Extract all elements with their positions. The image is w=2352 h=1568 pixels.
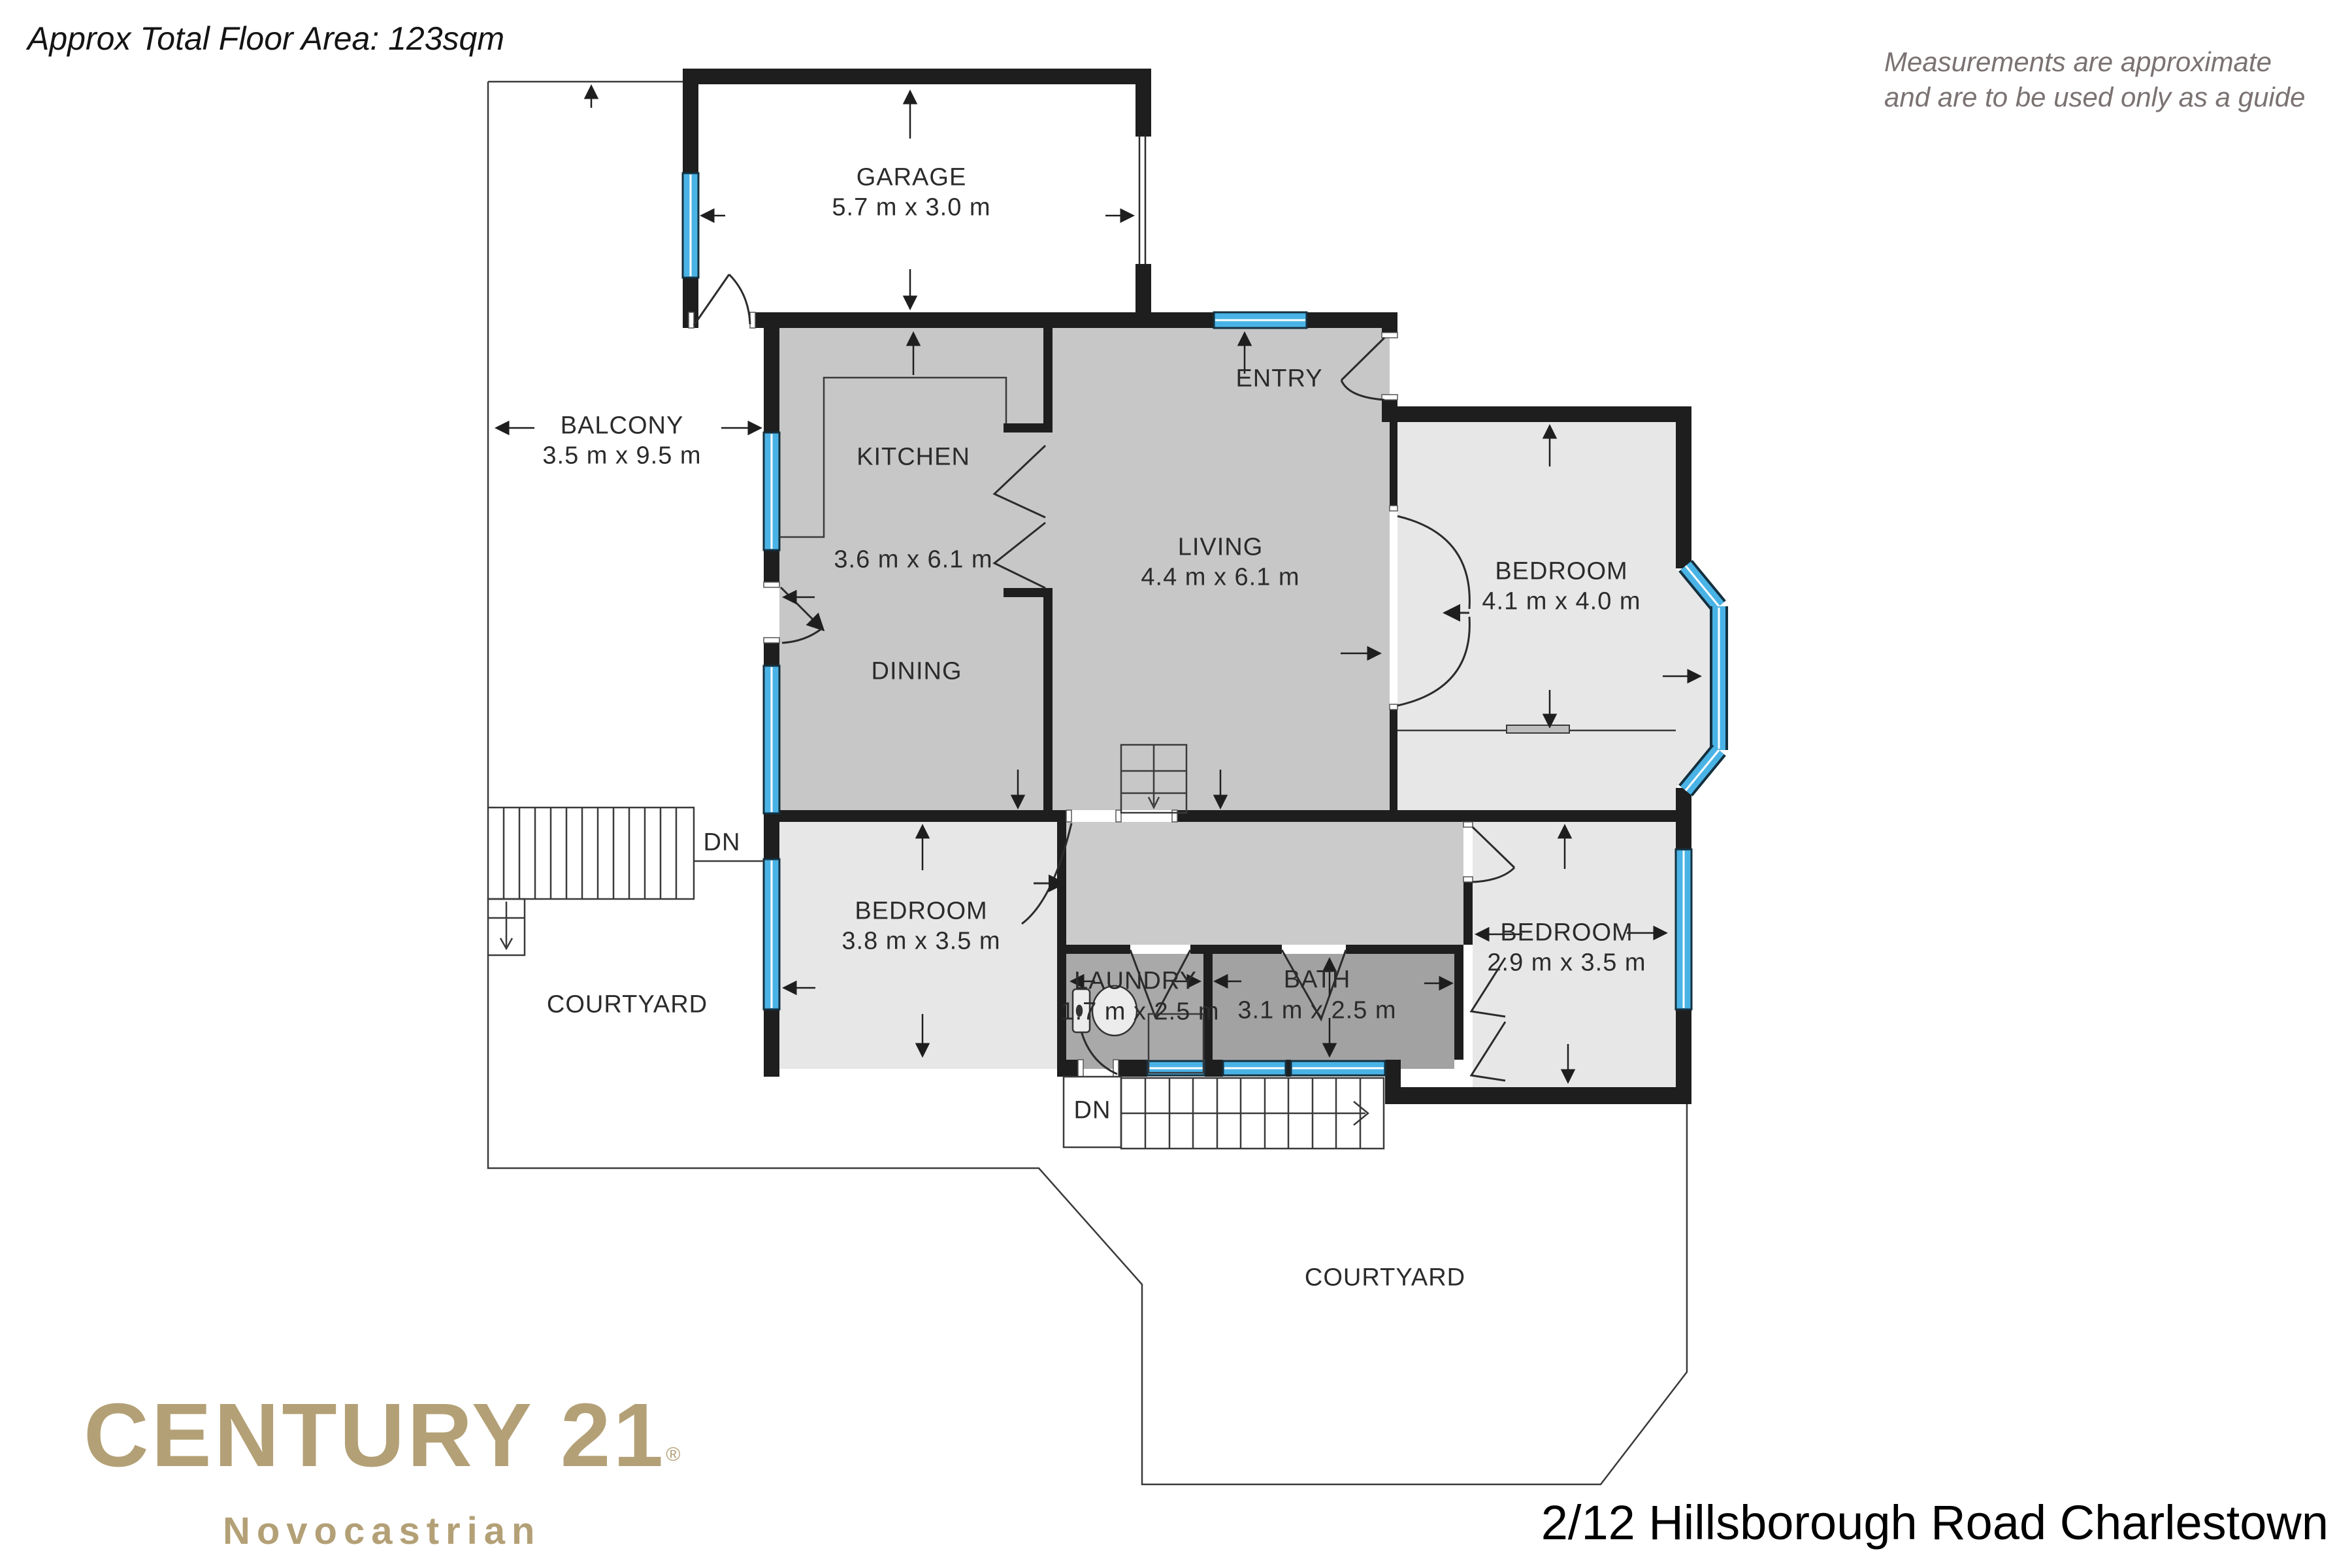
area-label-courtyard-bottom: COURTYARD [1305,1264,1465,1292]
room-label-living: LIVING [1178,534,1264,562]
garage-vehicle-door [1139,135,1145,264]
room-label-bedroom-top-right: BEDROOM [1495,558,1627,586]
room-dims-kitchen-dining: 3.6 m x 6.1 m [834,546,992,574]
floor-hallway [1066,822,1463,945]
brand-name: CENTURY 21® [84,1390,680,1500]
room-dims-balcony: 3.5 m x 9.5 m [542,442,701,470]
disclaimer-line-2: and are to be used only as a guide [1884,80,2305,115]
room-dims-bedroom-bottom-right: 2.9 m x 3.5 m [1487,949,1646,977]
stairs-label-dn-bottom: DN [1074,1097,1111,1125]
room-label-balcony: BALCONY [561,412,684,440]
stairs-label-dn-left: DN [704,829,741,857]
disclaimer-note: Measurements are approximate and are to … [1884,44,2305,115]
room-label-laundry: LAUNDRY [1074,968,1197,996]
room-label-garage: GARAGE [857,164,967,192]
page-title: Approx Total Floor Area: 123sqm [27,20,504,57]
room-label-entry: ENTRY [1235,365,1322,393]
garage-door-arc [694,274,750,325]
room-dims-living: 4.4 m x 6.1 m [1141,564,1299,592]
floor-plan-drawing [0,0,2352,1568]
room-dims-bath: 3.1 m x 2.5 m [1237,997,1396,1025]
disclaimer-line-1: Measurements are approximate [1884,44,2305,80]
office-name: Novocastrian [84,1509,680,1553]
room-label-dining: DINING [872,658,962,686]
room-dims-laundry: 1.7 m x 2.5 m [1060,998,1219,1026]
room-dims-garage: 5.7 m x 3.0 m [832,194,990,222]
stairs-courtyard-down [1064,1077,1384,1149]
property-address: 2/12 Hillsborough Road Charlestown [1541,1495,2328,1550]
brand-text: CENTURY 21 [84,1385,666,1486]
registered-mark: ® [666,1444,680,1465]
robe-track [1507,725,1569,733]
century21-logo: CENTURY 21® Novocastrian [84,1390,680,1553]
area-label-courtyard-left: COURTYARD [547,991,708,1019]
floor-bedroom-top-right [1397,422,1676,810]
room-dims-bedroom-bottom-left: 3.8 m x 3.5 m [841,928,1000,956]
room-dims-bedroom-top-right: 4.1 m x 4.0 m [1482,588,1641,616]
room-label-kitchen: KITCHEN [857,444,970,472]
room-label-bedroom-bottom-right: BEDROOM [1500,919,1633,947]
floor-plan-page: Approx Total Floor Area: 123sqm Measurem… [0,0,2352,1568]
room-label-bath: BATH [1284,966,1351,994]
room-label-bedroom-bottom-left: BEDROOM [855,898,987,926]
